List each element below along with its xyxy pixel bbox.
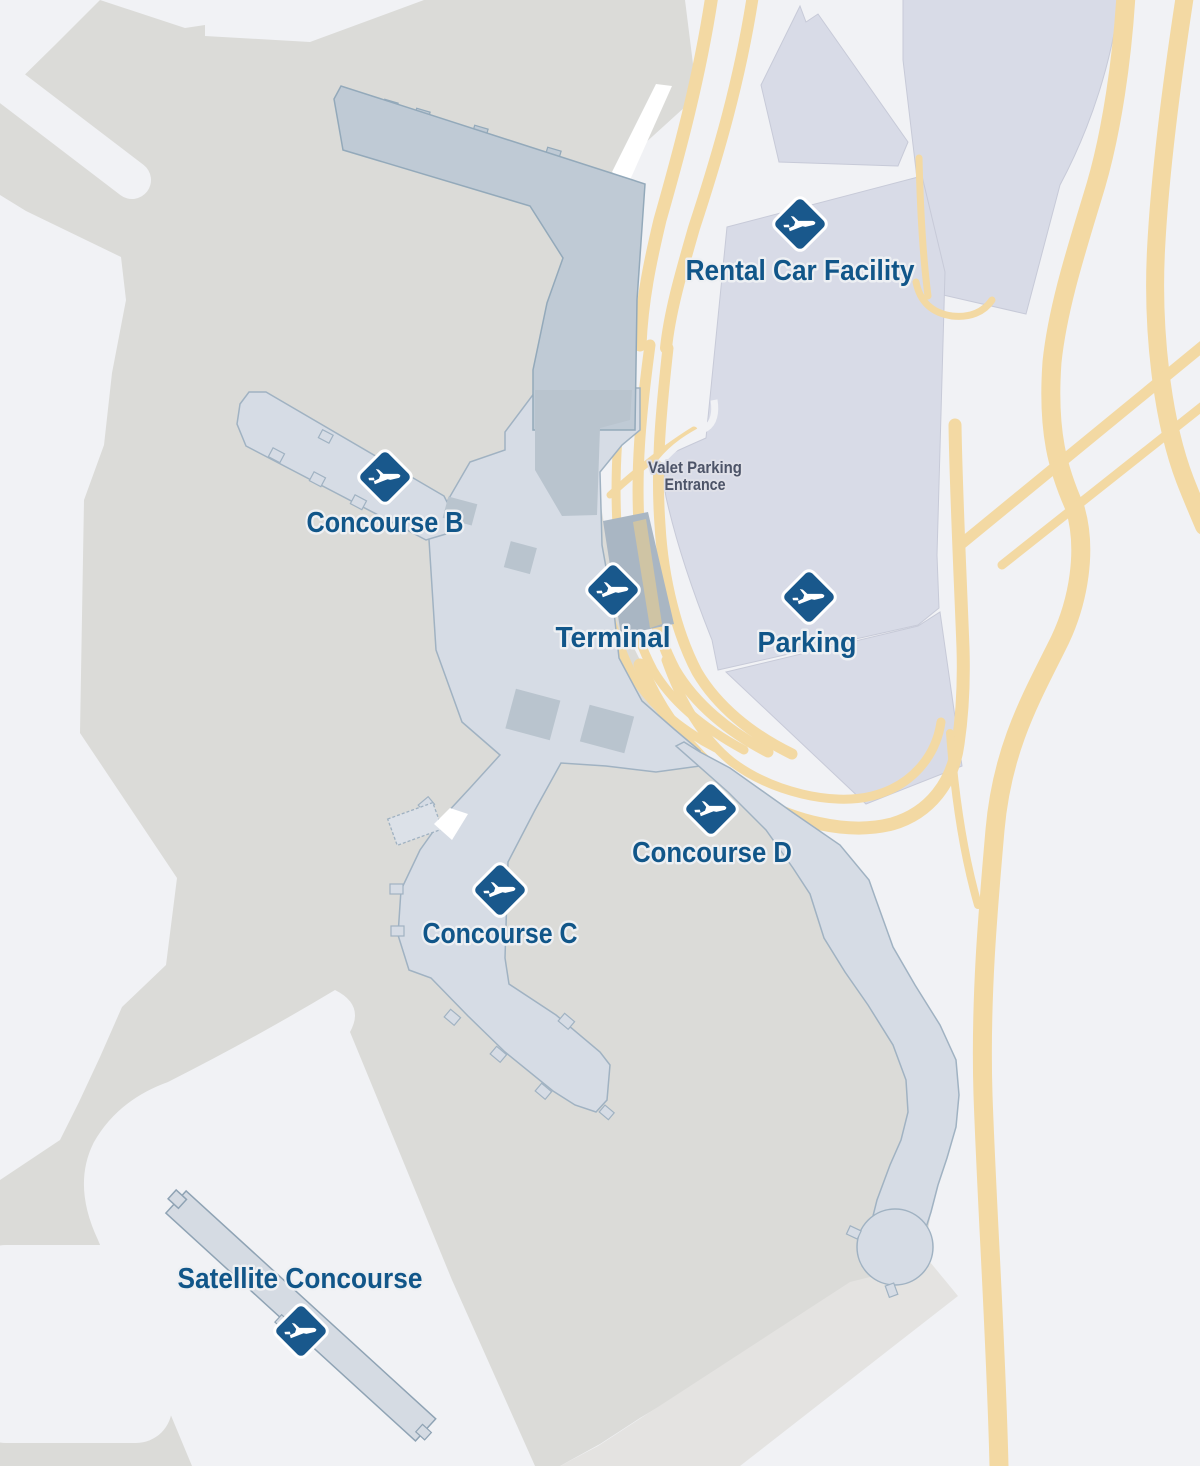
svg-text:Concourse B: Concourse B: [307, 505, 464, 538]
svg-text:Terminal: Terminal: [555, 622, 670, 654]
svg-text:Concourse D: Concourse D: [632, 836, 792, 869]
svg-text:Concourse C: Concourse C: [422, 917, 577, 949]
svg-text:Rental Car Facility: Rental Car Facility: [686, 254, 915, 287]
svg-text:Valet Parking: Valet Parking: [648, 459, 742, 477]
svg-text:Entrance: Entrance: [664, 476, 725, 494]
svg-text:Satellite Concourse: Satellite Concourse: [178, 1262, 423, 1295]
svg-text:Parking: Parking: [758, 626, 857, 658]
